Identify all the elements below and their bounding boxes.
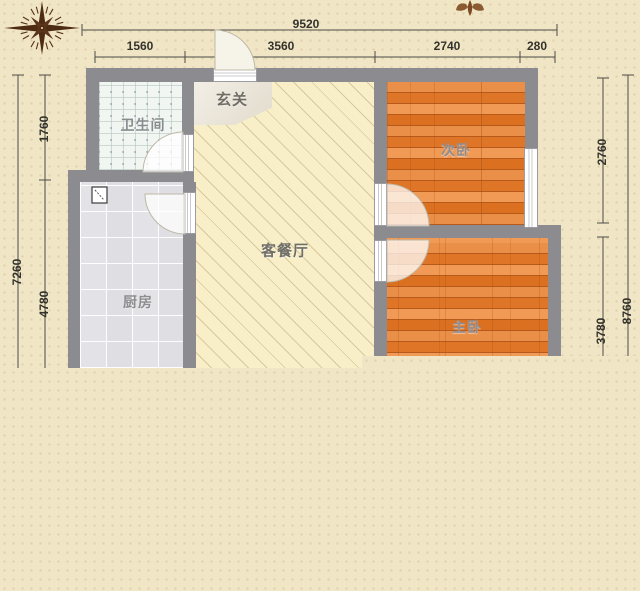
- master-door-arc: [387, 240, 429, 282]
- dim-right-total: 8760: [620, 298, 634, 325]
- dim-total-width: 9520: [293, 17, 320, 31]
- ornament-icon: [456, 0, 484, 16]
- floor-plan: 玄关 卫生间 厨房 客餐厅 次卧 主卧 9520 1560 3560 2740 …: [0, 0, 640, 591]
- compass-rose-icon: [4, 1, 80, 55]
- dim-right-1: 2760: [595, 139, 609, 166]
- room-label-bedroom2: 次卧: [441, 140, 471, 160]
- room-label-kitchen: 厨房: [123, 292, 153, 312]
- bedroom2-door-arc: [387, 184, 429, 226]
- room-label-bathroom: 卫生间: [121, 115, 166, 135]
- dim-top-3: 2740: [434, 39, 461, 53]
- kitchen-door-arc: [145, 194, 185, 234]
- dim-top-2: 3560: [268, 39, 295, 53]
- background-blank-area-bottom: [0, 368, 640, 591]
- water-heater-icon: [92, 187, 107, 203]
- bathroom-door-arc: [143, 132, 183, 172]
- room-label-entry: 玄关: [216, 89, 248, 110]
- dim-left-total: 7260: [10, 259, 24, 286]
- room-label-master: 主卧: [452, 317, 482, 337]
- dim-left-1: 1760: [37, 116, 51, 143]
- dim-left-2: 4780: [37, 291, 51, 318]
- dim-right-2: 3780: [594, 318, 608, 345]
- entry-door-arc: [215, 30, 255, 70]
- dim-top-1: 1560: [127, 39, 154, 53]
- dim-top-4: 280: [527, 39, 547, 53]
- room-label-living: 客餐厅: [261, 240, 309, 261]
